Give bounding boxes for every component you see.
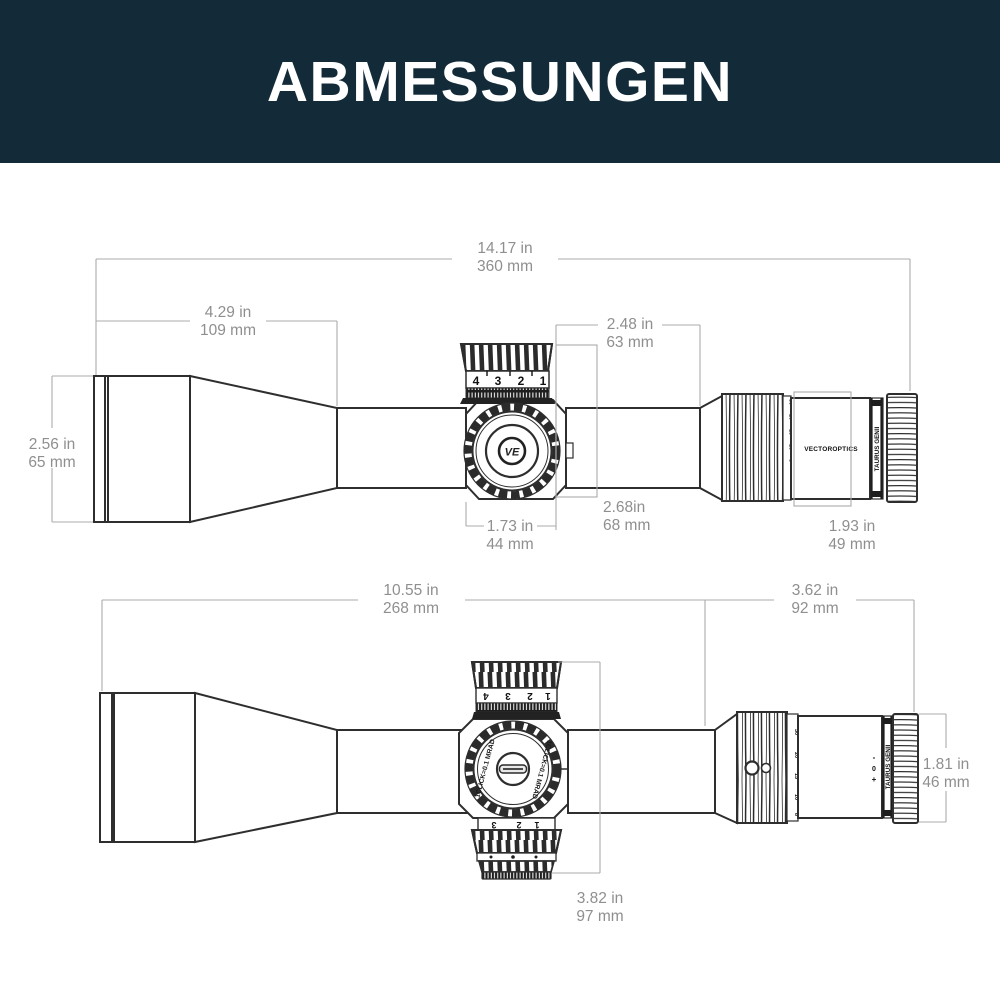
main-tube-front-top — [337, 730, 471, 813]
model-band-top: TAURUS GENII — [882, 716, 893, 818]
svg-text:VE: VE — [505, 447, 520, 459]
dim-objective-length-mm: 109 mm — [200, 322, 256, 339]
dim-saddle-width-mm: 44 mm — [486, 536, 533, 553]
dimension-diagram: 4 3 2 1 VE — [0, 163, 1000, 1000]
eyepiece-body-top — [798, 716, 882, 818]
eyepiece-assembly: 30 20 15 10 8 VECTOROPTICS TAURUS GENII — [700, 394, 917, 502]
side-turret-dial: VE — [464, 403, 560, 499]
dim-eyepiece-diameter-mm: 46 mm — [922, 774, 969, 791]
vector-optics-logo-icon: VE — [499, 438, 525, 464]
svg-text:-: - — [873, 753, 876, 762]
diopter-ring-top — [893, 714, 918, 823]
dim-saddle-width-in: 1.73 in — [487, 518, 534, 535]
main-tube-rear — [566, 408, 700, 488]
page: ABMESSUNGEN — [0, 0, 1000, 1000]
dim-turret-height-mm: 68 mm — [603, 517, 650, 534]
eyepiece-assembly-top: 30 20 15 10 8 - 0 + TAURUS G — [715, 712, 918, 823]
knob-number: 2 — [527, 690, 533, 701]
coin-slot — [500, 765, 527, 773]
dim-eyepiece-length-in: 1.93 in — [829, 518, 876, 535]
knob-number: 4 — [483, 690, 489, 701]
knob-number: 2 — [516, 820, 521, 830]
dim-eyepiece-diameter-in: 1.81 in — [923, 756, 970, 773]
turret-number: 2 — [518, 374, 525, 388]
objective-bell — [94, 376, 337, 522]
set-screw-icon — [762, 764, 771, 773]
turret-number: 4 — [473, 374, 480, 388]
dim-body-length-in: 10.55 in — [383, 582, 438, 599]
elevation-turret: 4 3 2 1 — [460, 344, 555, 404]
dim-turret-span-mm: 97 mm — [576, 908, 623, 925]
dim-turret-height-in: 2.68in — [603, 499, 645, 516]
svg-text:0: 0 — [872, 766, 876, 773]
dim-saddle-eyepiece-in: 2.48 in — [607, 316, 654, 333]
dim-overall-in: 14.17 in — [477, 240, 532, 257]
brand-label: VECTOROPTICS — [804, 446, 858, 453]
scope-top-view: 4 3 2 1 1CLICK=0.1 MRAD 1CLICK=0.1 MRAD — [100, 662, 918, 879]
page-title: ABMESSUNGEN — [267, 49, 733, 115]
dim-objective-diameter-mm: 65 mm — [28, 454, 75, 471]
turret-number: 1 — [540, 374, 547, 388]
knob-number: 1 — [534, 820, 539, 830]
dim-eyepiece-assembly-mm: 92 mm — [791, 600, 838, 617]
knob-number: 3 — [505, 690, 511, 701]
dim-objective-diameter-in: 2.56 in — [29, 436, 76, 453]
objective-bell-top — [100, 693, 337, 842]
dim-overall-mm: 360 mm — [477, 258, 533, 275]
turret-number: 3 — [495, 374, 502, 388]
diopter-ring — [887, 394, 917, 502]
dim-objective-length-in: 4.29 in — [205, 304, 252, 321]
main-tube-front — [337, 408, 466, 488]
model-label: TAURUS GENII — [874, 426, 881, 471]
knob-number: 1 — [545, 690, 551, 701]
parallax-illumination-turret: 3 2 1 — [472, 818, 561, 879]
dim-eyepiece-length-mm: 49 mm — [828, 536, 875, 553]
dim-body-length-mm: 268 mm — [383, 600, 439, 617]
svg-text:+: + — [872, 775, 877, 784]
knob-number: 3 — [491, 820, 496, 830]
model-label: TAURUS GENII — [885, 744, 892, 789]
dim-saddle-eyepiece-mm: 63 mm — [606, 334, 653, 351]
title-banner: ABMESSUNGEN — [0, 0, 1000, 163]
dim-turret-span-in: 3.82 in — [577, 890, 624, 907]
main-tube-rear-top — [568, 730, 715, 813]
windage-turret: 4 3 2 1 — [472, 662, 561, 719]
zoom-ring — [722, 394, 783, 501]
model-band: TAURUS GENII — [870, 398, 883, 499]
dim-eyepiece-assembly-in: 3.62 in — [792, 582, 839, 599]
throw-lever-socket-icon — [746, 762, 759, 775]
